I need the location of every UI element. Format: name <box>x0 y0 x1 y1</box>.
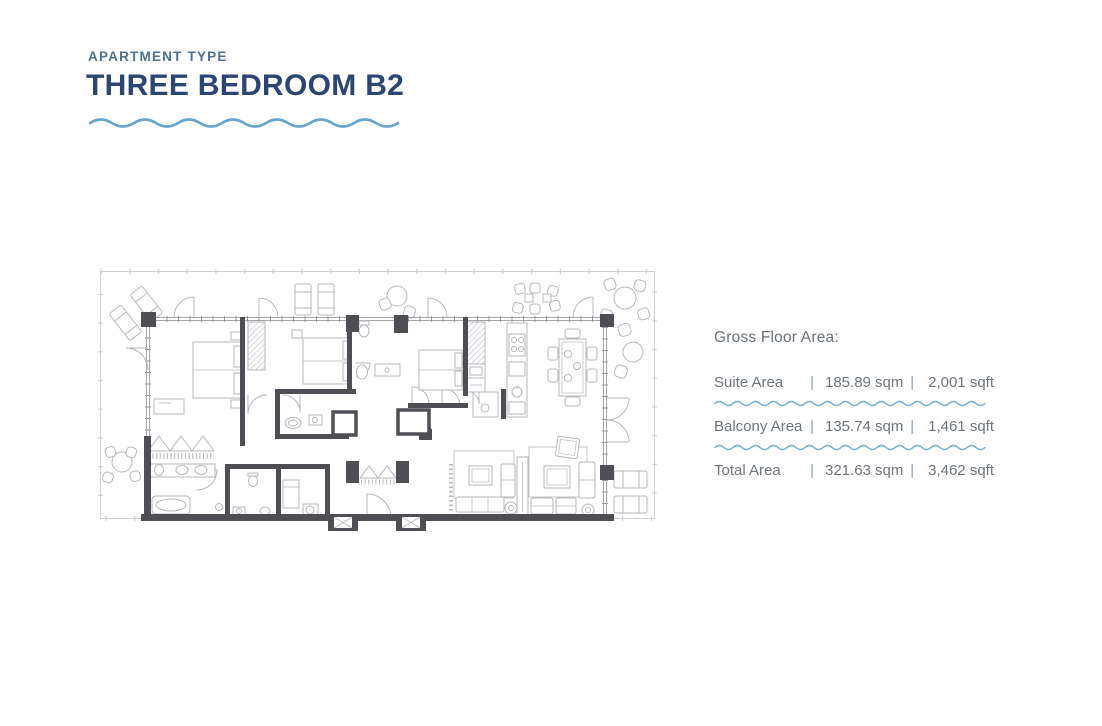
area-row-suite: Suite Area | 185.89 sqm | 2,001 sqft <box>714 373 994 391</box>
area-row-sqft: 3,462 sqft <box>928 462 994 479</box>
floor-plan-svg <box>97 268 658 532</box>
area-row-sqm: 185.89 sqm <box>825 374 910 391</box>
pipe-divider: | <box>810 374 814 391</box>
floor-plan <box>97 268 658 532</box>
pipe-divider: | <box>910 462 914 479</box>
page-root: APARTMENT TYPE THREE BEDROOM B2 <box>0 0 1102 726</box>
area-row-balcony: Balcony Area | 135.74 sqm | 1,461 sqft <box>714 417 994 435</box>
wave-underline-icon <box>88 115 404 134</box>
area-row-label: Total Area <box>714 462 810 479</box>
pipe-divider: | <box>910 374 914 391</box>
area-row-sqm: 321.63 sqm <box>825 462 910 479</box>
area-heading: Gross Floor Area: <box>714 329 994 347</box>
area-row-sqft: 1,461 sqft <box>928 418 994 435</box>
area-row-label: Suite Area <box>714 374 810 391</box>
area-panel: Gross Floor Area: Suite Area | 185.89 sq… <box>714 329 994 479</box>
area-rows: Suite Area | 185.89 sqm | 2,001 sqft Bal… <box>714 373 994 479</box>
area-row-total: Total Area | 321.63 sqm | 3,462 sqft <box>714 461 994 479</box>
area-row-sqft: 2,001 sqft <box>928 374 994 391</box>
page-title: THREE BEDROOM B2 <box>86 69 404 103</box>
pipe-divider: | <box>910 418 914 435</box>
wave-divider-icon <box>714 399 992 408</box>
area-row-label: Balcony Area <box>714 418 810 435</box>
pipe-divider: | <box>810 418 814 435</box>
pipe-divider: | <box>810 462 814 479</box>
area-row-sqm: 135.74 sqm <box>825 418 910 435</box>
wave-divider-icon <box>714 443 992 452</box>
eyebrow-label: APARTMENT TYPE <box>88 49 228 64</box>
